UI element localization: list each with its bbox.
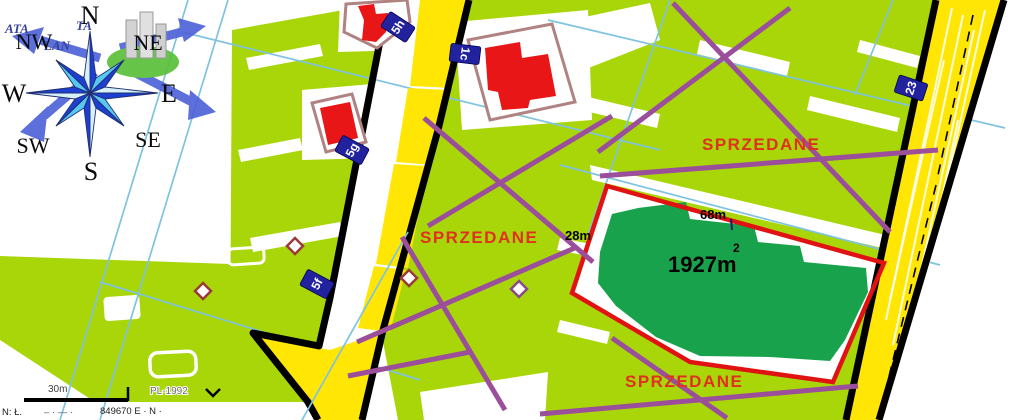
compass-label-nw: NW [16, 29, 53, 54]
badge-label: 1c [457, 47, 473, 62]
plot-width-label: 68m [700, 207, 726, 222]
dimension-tick [731, 219, 732, 230]
compass-label-s: S [84, 157, 98, 186]
compass-label-sw: SW [17, 133, 50, 158]
sold-label-top: SPRZEDANE [702, 135, 820, 154]
sold-label-middle: SPRZEDANE [420, 228, 538, 247]
map-canvas: 5h 1c 5g 5f 23 SPRZEDANE SPRZEDANE SPRZE… [0, 0, 1024, 420]
compass-label-ne: NE [133, 30, 162, 55]
compass-label-n: N [81, 1, 100, 30]
scale-distance-label: 30m [48, 384, 67, 395]
crs-label: PL-1992 [150, 386, 188, 397]
footer-fragment-mid: – · — · [44, 407, 73, 418]
compass-label-e: E [161, 79, 177, 108]
footer-fragment-left: N: Ł. [2, 407, 22, 418]
cadastral-map: 5h 1c 5g 5f 23 SPRZEDANE SPRZEDANE SPRZE… [0, 0, 1024, 420]
parcel-badge-1c: 1c [449, 43, 481, 65]
sold-label-bottom: SPRZEDANE [625, 372, 743, 391]
compass-label-w: W [2, 79, 27, 108]
plot-area-exponent: 2 [733, 241, 740, 255]
compass-label-se: SE [135, 127, 161, 152]
plot-area-label: 1927m [668, 252, 737, 277]
footer-fragment-right: 849670 E · N · [100, 406, 162, 417]
plot-depth-label: 28m [565, 228, 591, 243]
